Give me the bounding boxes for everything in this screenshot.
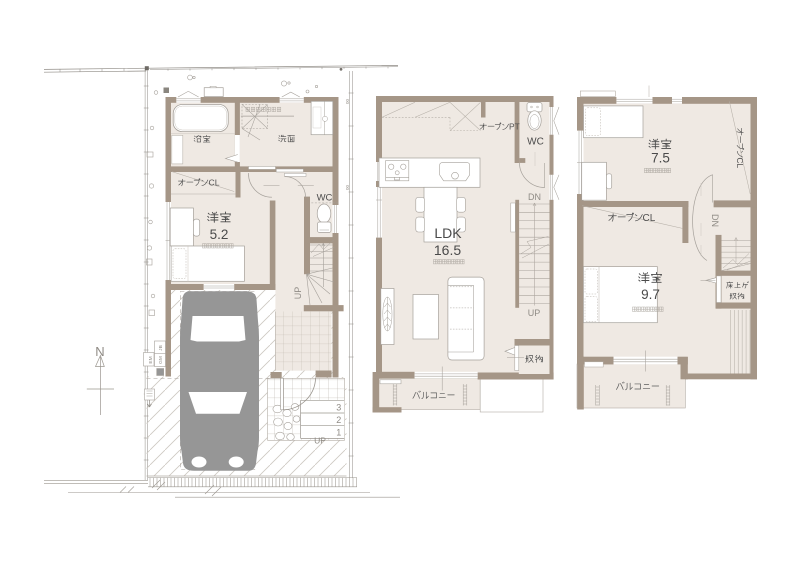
svg-text:7.5: 7.5 (651, 151, 670, 166)
svg-text:WC: WC (317, 192, 333, 203)
svg-text:00: 00 (345, 184, 350, 190)
svg-text:LDK: LDK (434, 225, 462, 241)
svg-text:2: 2 (336, 415, 341, 425)
svg-text:JB: JB (158, 345, 164, 351)
svg-text:GM: GM (158, 356, 164, 364)
svg-text:DN: DN (528, 192, 541, 202)
svg-text:3: 3 (336, 402, 341, 412)
svg-text:N: N (95, 344, 104, 359)
svg-text:00: 00 (345, 98, 350, 104)
svg-text:CL: CL (209, 178, 220, 188)
svg-text:DN: DN (710, 214, 720, 227)
svg-text:CL: CL (643, 213, 656, 224)
svg-text:9.7: 9.7 (641, 287, 660, 302)
svg-text:UP: UP (314, 436, 326, 446)
svg-text:1: 1 (336, 428, 341, 438)
svg-text:PT: PT (509, 122, 520, 132)
svg-text:UP: UP (528, 308, 541, 318)
svg-text:WC: WC (527, 136, 544, 147)
svg-text:UP: UP (293, 287, 303, 300)
svg-text:CL: CL (735, 158, 745, 169)
svg-text:16.5: 16.5 (434, 242, 461, 258)
svg-text:EM: EM (148, 356, 154, 363)
svg-text:5.2: 5.2 (210, 227, 229, 242)
